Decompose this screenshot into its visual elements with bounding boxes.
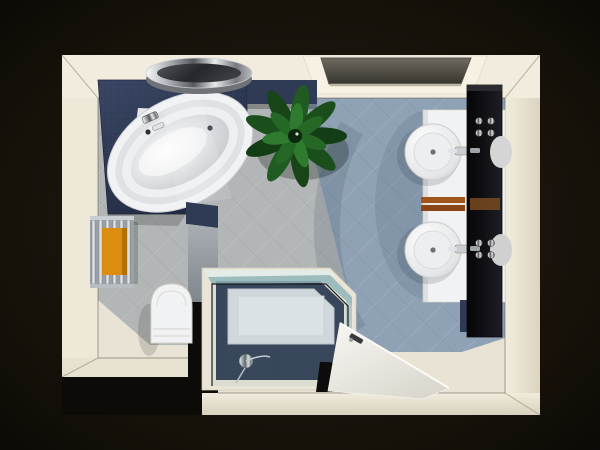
- radiator-rail-top: [90, 216, 134, 220]
- recessed-ceiling-light: [303, 56, 487, 94]
- mirror-reflection-towels: [470, 198, 500, 210]
- radiator-shadow: [134, 222, 138, 284]
- hand-towel-1: [421, 197, 465, 203]
- hand-towel-2: [421, 205, 465, 211]
- basin-top-spout: [448, 149, 457, 153]
- wall-bottom-alcove: [62, 358, 202, 377]
- bathroom-floorplan-svg: [0, 0, 600, 450]
- basin-bottom-drain: [430, 247, 435, 252]
- mirror-reflection-basin-top: [490, 136, 512, 168]
- towel-radiator: [90, 216, 138, 288]
- mirror-reflection-faucet-bottom: [470, 246, 480, 251]
- hand-towel-bar: [421, 197, 465, 211]
- toilet-body: [151, 284, 192, 343]
- plant-center: [288, 129, 302, 143]
- radiator-rail-bottom: [90, 284, 134, 288]
- wall-bottom: [202, 393, 540, 415]
- orange-towel-shade: [122, 228, 127, 275]
- mirror-glass: [157, 64, 241, 83]
- mirror-panel-glass: [467, 85, 502, 337]
- mirror-reflection-faucet-top: [470, 148, 480, 153]
- mirror-top-sliver: [467, 85, 502, 91]
- basin-top-drain: [430, 149, 435, 154]
- partition-cap-navy: [186, 202, 218, 228]
- bathroom-render: [0, 0, 600, 450]
- basin-bottom-spout: [448, 247, 457, 251]
- faucet-handle: [145, 129, 150, 134]
- void-bottom-left: [62, 377, 202, 415]
- tub-drain: [207, 125, 212, 130]
- door-handle-rose: [349, 338, 353, 342]
- plant-center-highlight: [295, 132, 298, 135]
- mirror-reflection-basin-bottom: [490, 234, 512, 266]
- skylight-panel: [321, 58, 471, 84]
- round-chrome-mirror: [146, 58, 252, 94]
